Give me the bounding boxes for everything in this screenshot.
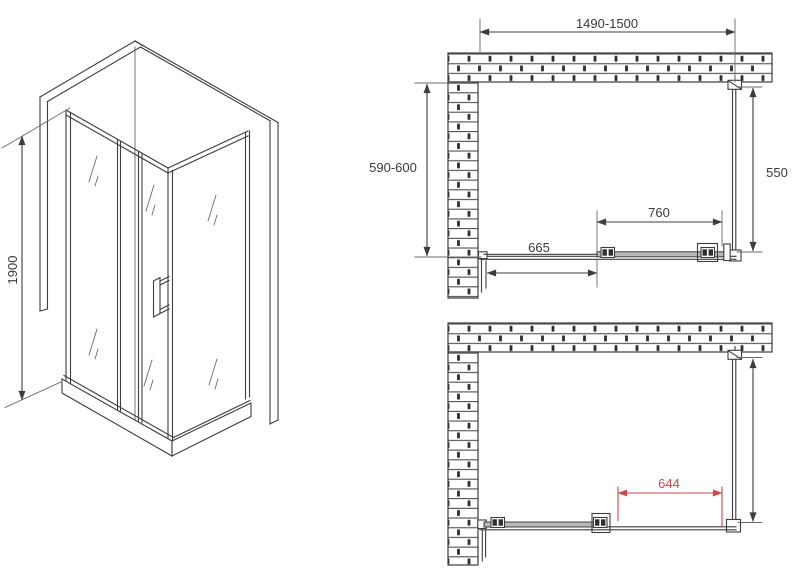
dim-door-label: 760 — [648, 205, 670, 220]
technical-drawing-canvas: 1900 — [0, 0, 800, 586]
dimension-opening: 644 — [618, 476, 722, 526]
masonry-walls-iso — [40, 41, 278, 428]
dim-opening-label: 644 — [658, 476, 680, 491]
dim-side-panel-label: 550 — [766, 165, 788, 180]
iso-view: 1900 — [2, 41, 278, 456]
dimension-height: 1900 — [2, 108, 70, 408]
plan-view-closed: 1490-1500 590-600 550 760 665 — [369, 16, 788, 298]
dimension-fixed-panel: 665 — [487, 240, 597, 287]
plan-view-open: 644 — [448, 323, 772, 565]
masonry-wall-left-column — [448, 82, 478, 298]
technical-drawing-page: 1900 — [0, 0, 800, 586]
door-handle — [154, 277, 170, 318]
dimension-door: 760 — [597, 205, 722, 251]
dim-width-label: 1490-1500 — [576, 16, 638, 31]
dim-depth-label: 590-600 — [369, 160, 417, 175]
masonry-wall-top-band — [448, 323, 772, 352]
shower-tray — [62, 376, 251, 457]
glass-hatch-marks — [89, 156, 218, 390]
side-glass-panel — [727, 347, 742, 533]
dim-fixed-panel-label: 665 — [528, 240, 550, 255]
dimension-side-panel: 550 — [737, 87, 788, 252]
enclosure-frame-iso — [66, 110, 250, 444]
masonry-wall-left-column — [448, 352, 478, 565]
dimension-side-unlabeled — [737, 358, 762, 523]
side-glass-panel — [728, 77, 742, 262]
dim-height-label: 1900 — [5, 256, 20, 285]
masonry-wall-top-band — [448, 53, 772, 82]
